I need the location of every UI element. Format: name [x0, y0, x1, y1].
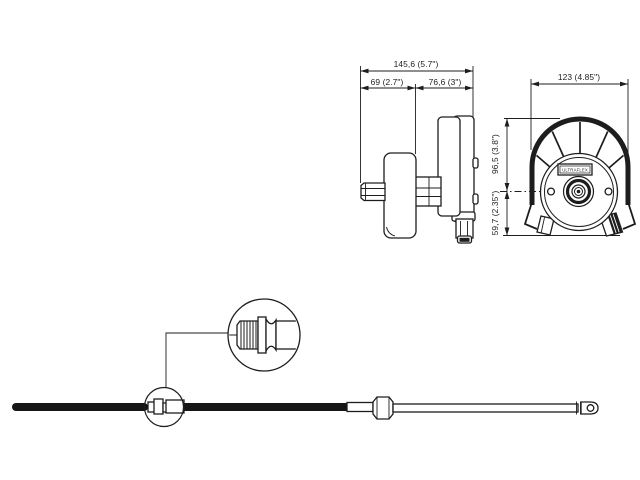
- brand-label: ULTRAFLEX: [562, 168, 588, 173]
- cable-left-run: [12, 403, 148, 411]
- dimension-sub-widths: 69 (2.7") 76,6 (3"): [361, 77, 474, 90]
- face-hole-right: [605, 188, 612, 195]
- dimension-heights: 96,5 (3.8") 59,7 (2.35"): [490, 119, 509, 236]
- dimension-overall-width: 145,6 (5.7"): [361, 59, 474, 73]
- dimension-front-width: 123 (4.85"): [531, 72, 628, 86]
- dimension-label-front-section: 69 (2.7"): [371, 77, 404, 87]
- side-view: 145,6 (5.7") 69 (2.7") 76,6 (3"): [361, 59, 479, 243]
- helm-housing: [384, 153, 416, 238]
- dimension-label-rear-section: 76,6 (3"): [429, 77, 462, 87]
- plate-tab-upper: [473, 158, 478, 168]
- front-view: 123 (4.85") 96,5 (3.8") 59,7 (2.35"): [490, 72, 635, 236]
- cable-connector: [148, 399, 184, 414]
- hex-nut: [373, 397, 393, 419]
- dimension-label-upper-height: 96,5 (3.8"): [490, 134, 500, 174]
- connector-neck: [266, 319, 276, 351]
- dimension-label-width: 123 (4.85"): [558, 72, 600, 82]
- cable-end-sleeve: [347, 403, 373, 412]
- dimension-label-lower-height: 59,7 (2.35"): [490, 191, 500, 236]
- drawing-canvas: 145,6 (5.7") 69 (2.7") 76,6 (3"): [0, 0, 640, 480]
- plate-tab-lower: [473, 194, 478, 204]
- output-rod: [393, 404, 578, 412]
- dome-flange-right: [623, 202, 635, 229]
- dimension-label-overall: 145,6 (5.7"): [394, 59, 439, 69]
- connector-flange: [258, 317, 266, 353]
- rod-eye-end: [577, 402, 599, 415]
- shaft-hub-boss: [564, 177, 594, 207]
- outlet-cap: [460, 238, 470, 242]
- face-hole-left: [548, 188, 555, 195]
- rod-eye-hole: [587, 405, 594, 412]
- steering-system-technical-drawing: 145,6 (5.7") 69 (2.7") 76,6 (3"): [0, 0, 640, 480]
- cable-right-run: [182, 403, 347, 411]
- threaded-connector-detail: [229, 317, 303, 353]
- dome-flange-left: [525, 202, 537, 229]
- connector-detail-view: [228, 299, 303, 371]
- gear-housing: [416, 177, 442, 206]
- steering-cable-assembly: [12, 299, 598, 427]
- brand-plate: ULTRAFLEX: [558, 164, 592, 175]
- detail-leader-line: [166, 333, 229, 388]
- steering-shaft: [361, 183, 385, 201]
